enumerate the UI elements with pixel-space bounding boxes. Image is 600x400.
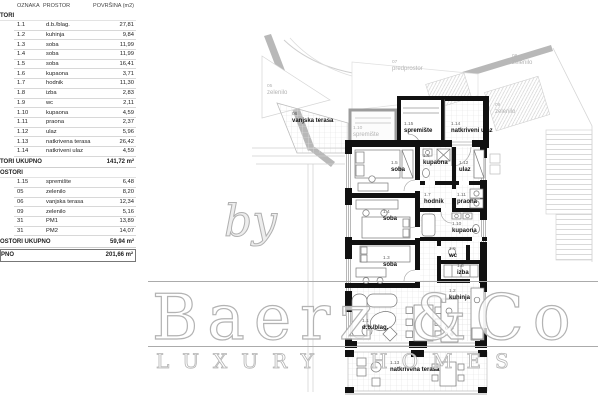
row-code: 1.3 [14,42,46,48]
table-row: 1.10 kupaona 4,59 [14,108,136,118]
row-code: 1.10 [14,110,46,116]
exterior-equipment [490,154,500,174]
label-predprostor-07: 07predprostor [392,60,423,73]
label-zelenilo-05: 05zelenilo [267,84,287,97]
label-name: kupaona [452,228,477,235]
label-kuhinja-1-2: 1.2kuhinja [449,289,470,302]
label-name: kuhinja [449,295,470,302]
table-row: 1.6 kupaona 3,71 [14,69,136,79]
row-area: 9,84 [94,32,136,38]
row-code: 31 [14,228,46,234]
row-name: kuhinja [46,32,94,38]
col-header-prostor: PROSTOR [43,3,89,9]
row-name: wc [46,100,94,106]
table-row: 1.11 praona 2,37 [14,118,136,128]
label-name: zelenilo [267,90,287,97]
grand-total-row: PNO 201,66 m² [0,249,136,262]
label-soba-1-5: 1.5soba [391,161,405,174]
table-row: 1.8 izba 2,83 [14,89,136,99]
label-name: predprostor [392,66,423,73]
ramp-right [556,214,592,260]
table-row: 1.1 d.b./blag. 27,81 [14,21,136,31]
row-area: 2,11 [94,100,136,106]
table-row: 31 PM2 14,07 [14,227,136,237]
row-code: 1.9 [14,100,46,106]
label-name: soba [383,216,397,223]
row-name: natkriveni ulaz [46,148,94,154]
row-area: 26,42 [94,139,136,145]
table-row: 1.12 ulaz 5,96 [14,128,136,138]
label-name: zelenilo [495,109,515,116]
label-natkrivena-terasa-1-13: 1.13natkrivena terasa [390,361,439,374]
label-name: spremište [404,128,432,135]
label-name: wc [449,253,457,260]
row-name: ulaz [46,129,94,135]
label-name: praona [457,199,477,206]
label-wc-1-9: 1.9wc [449,247,457,260]
label-name: hodnik [424,199,444,206]
label-name: vanjska terasa [292,118,333,125]
row-name: soba [46,51,94,57]
table-row: 05 zelenilo 8,20 [14,188,136,198]
label-hodnik-1-7: 1.7hodnik [424,193,444,206]
row-area: 6,48 [94,179,136,185]
section2-total-row: OSTORI UKUPNO 59,94 m² [0,236,136,248]
row-area: 13,89 [94,218,136,224]
section1-header: TORI [0,11,136,21]
row-area: 5,96 [94,129,136,135]
table-row: 06 vanjska terasa 12,34 [14,198,136,208]
row-name: PM2 [46,228,94,234]
label-dnevni-boravak-1-1: 1.1d.b./blag. [362,319,388,332]
label-kupaona-1-10: 1.10kupaona [452,222,477,235]
row-name: soba [46,61,94,67]
label-name: d.b./blag. [362,325,388,332]
vanjska-terasa-06-area [277,103,348,153]
row-area: 27,81 [94,22,136,28]
row-code: 1.14 [14,148,46,154]
row-code: 05 [14,189,46,195]
label-zelenilo-08: 08zelenilo [512,54,532,67]
label-vanjska-terasa-06: 06vanjska terasa [292,112,333,125]
label-name: spremište [353,132,379,139]
section2-total-label: OSTORI UKUPNO [0,239,110,245]
label-name: natkrivena terasa [390,367,439,374]
table-row: 1.13 natkrivena terasa 26,42 [14,137,136,147]
row-name: izba [46,90,94,96]
row-code: 06 [14,199,46,205]
label-natkriveni-ulaz-1-14: 1.14natkriveni ulaz [451,122,493,135]
section1-total-value: 141,72 m² [107,159,136,165]
row-name: kupaona [46,110,94,116]
table-row: 1.3 soba 11,99 [14,40,136,50]
row-area: 5,16 [94,209,136,215]
row-area: 14,07 [94,228,136,234]
row-name: soba [46,42,94,48]
site-boundary-lines [252,148,345,392]
row-code: 1.5 [14,61,46,67]
row-name: PM1 [46,218,94,224]
col-header-oznaka: OZNAKA [17,3,43,9]
row-code: 1.4 [14,51,46,57]
row-area: 3,71 [94,71,136,77]
floor-plan-page: OZNAKA PROSTOR POVRŠINA (m2) TORI 1.1 d.… [0,0,600,400]
row-area: 12,34 [94,199,136,205]
section2-total-value: 59,94 m² [110,239,136,245]
row-code: 1.6 [14,71,46,77]
row-code: 1.2 [14,32,46,38]
table-row: 09 zelenilo 5,16 [14,207,136,217]
row-area: 8,20 [94,189,136,195]
label-name: zelenilo [512,60,532,67]
row-name: kupaona [46,71,94,77]
row-name: zelenilo [46,189,94,195]
label-ulaz-1-12: 1.12ulaz [459,161,471,174]
table-row: 1.7 hodnik 11,30 [14,79,136,89]
label-soba-1-3: 1.3soba [383,256,397,269]
row-name: praona [46,119,94,125]
label-kupaona-1-6: 1.6kupaona [423,154,448,167]
row-name: d.b./blag. [46,22,94,28]
label-izba-1-8: 1.8izba [457,264,469,277]
row-code: 1.11 [14,119,46,125]
label-spremiste-neighbor: 1.10spremište [353,126,379,139]
row-area: 16,41 [94,61,136,67]
row-area: 11,30 [94,80,136,86]
row-area: 2,83 [94,90,136,96]
row-area: 4,59 [94,148,136,154]
row-code: 1.15 [14,179,46,185]
col-header-povrsina: POVRŠINA (m2) [89,3,136,9]
label-name: natkriveni ulaz [451,128,493,135]
table-row: 1.4 soba 11,99 [14,50,136,60]
row-code: 1.8 [14,90,46,96]
row-code: 1.1 [14,22,46,28]
row-name: zelenilo [46,209,94,215]
label-name: ulaz [459,167,471,174]
row-name: hodnik [46,80,94,86]
row-area: 11,99 [94,42,136,48]
label-name: kupaona [423,160,448,167]
row-code: 09 [14,209,46,215]
row-code: 1.13 [14,139,46,145]
label-spremiste-1-15: 1.15spremište [404,122,432,135]
table-row: 31 PM1 13,89 [14,217,136,227]
section2-header: OSTORI [0,168,136,178]
table-header-row: OZNAKA PROSTOR POVRŠINA (m2) [0,1,136,11]
grand-total-value: 201,66 m² [106,252,135,258]
label-praona-1-11: 1.11praona [457,193,477,206]
label-name: soba [391,167,405,174]
label-soba-1-4: 1.4soba [383,210,397,223]
label-name: soba [383,262,397,269]
row-area: 2,37 [94,119,136,125]
row-area: 4,59 [94,110,136,116]
section1-total-label: TORI UKUPNO [0,159,107,165]
grand-total-label: PNO [1,252,106,258]
table-row: 1.14 natkriveni ulaz 4,59 [14,147,136,157]
row-name: vanjska terasa [46,199,94,205]
label-zelenilo-09: 09zelenilo [495,103,515,116]
row-name: natkrivena terasa [46,139,94,145]
area-table: OZNAKA PROSTOR POVRŠINA (m2) TORI 1.1 d.… [0,1,136,262]
row-name: spremište [46,179,94,185]
row-code: 1.7 [14,80,46,86]
table-row: 1.5 soba 16,41 [14,60,136,70]
table-row: 1.9 wc 2,11 [14,99,136,109]
row-area: 11,99 [94,51,136,57]
row-code: 1.12 [14,129,46,135]
label-name: izba [457,270,469,277]
stairs-right [546,130,592,214]
section1-total-row: TORI UKUPNO 141,72 m² [0,157,136,169]
table-row: 1.15 spremište 6,48 [14,178,136,188]
table-row: 1.2 kuhinja 9,84 [14,31,136,41]
row-code: 31 [14,218,46,224]
